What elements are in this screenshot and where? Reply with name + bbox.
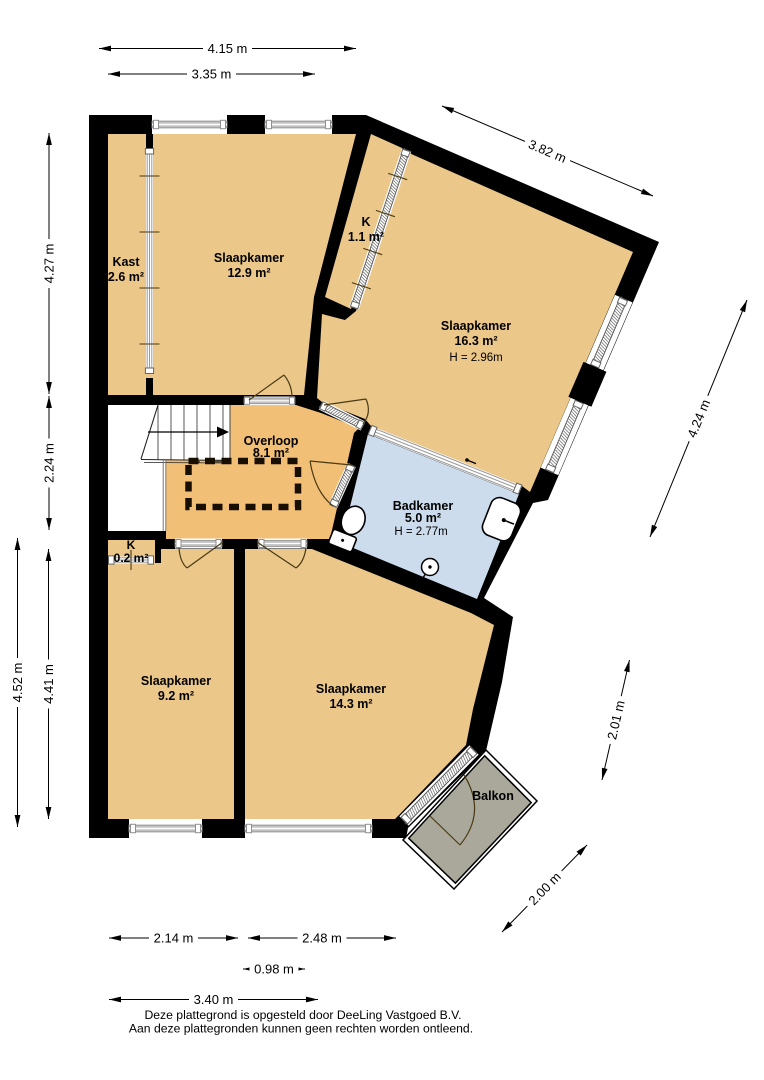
svg-text:4.52 m: 4.52 m [10,663,25,703]
svg-text:3.35 m: 3.35 m [192,67,232,82]
svg-text:4.41 m: 4.41 m [41,664,56,704]
svg-text:4.27 m: 4.27 m [42,244,57,284]
svg-text:Slaapkamer: Slaapkamer [214,251,284,265]
svg-text:Kast: Kast [112,255,140,269]
svg-text:Balkon: Balkon [472,789,514,803]
svg-text:1.1 m²: 1.1 m² [348,230,384,244]
svg-text:3.40 m: 3.40 m [194,992,234,1007]
svg-text:H = 2.77m: H = 2.77m [394,526,447,538]
svg-text:K: K [361,215,370,229]
svg-text:0.2 m²: 0.2 m² [114,551,149,565]
svg-text:14.3 m²: 14.3 m² [329,697,372,711]
svg-text:Aan deze plattegronden kunnen: Aan deze plattegronden kunnen geen recht… [129,1022,473,1036]
svg-text:12.9 m²: 12.9 m² [227,266,270,280]
svg-text:2.14 m: 2.14 m [154,931,194,946]
svg-text:Deze plattegrond is opgesteld: Deze plattegrond is opgesteld door DeeLi… [144,1008,461,1022]
svg-text:16.3 m²: 16.3 m² [454,334,497,348]
svg-text:2.48 m: 2.48 m [302,931,342,946]
svg-text:9.2 m²: 9.2 m² [158,689,194,703]
svg-text:0.98 m: 0.98 m [254,962,294,977]
svg-text:5.0 m²: 5.0 m² [405,511,441,525]
svg-text:4.15 m: 4.15 m [208,41,248,56]
svg-text:H = 2.96m: H = 2.96m [449,352,502,364]
svg-text:8.1 m²: 8.1 m² [253,446,289,460]
svg-text:K: K [127,538,136,552]
svg-text:Slaapkamer: Slaapkamer [316,682,386,696]
svg-text:Slaapkamer: Slaapkamer [141,674,211,688]
svg-text:2.24 m: 2.24 m [42,443,57,483]
svg-text:Slaapkamer: Slaapkamer [441,319,511,333]
svg-text:2.6 m²: 2.6 m² [108,270,144,284]
